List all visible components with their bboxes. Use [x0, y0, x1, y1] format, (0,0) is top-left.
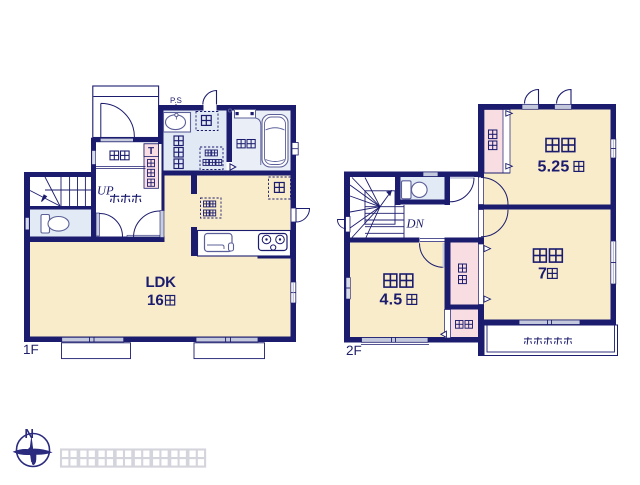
svg-text:4.5: 4.5 [380, 292, 403, 309]
svg-text:2F: 2F [346, 343, 362, 358]
svg-text:T: T [148, 146, 154, 157]
svg-text:UP: UP [97, 184, 114, 198]
svg-text:5.25: 5.25 [538, 159, 570, 176]
svg-text:P.S: P.S [170, 96, 182, 105]
svg-text:N: N [25, 426, 34, 441]
svg-text:16: 16 [147, 292, 164, 309]
svg-text:LDK: LDK [146, 274, 177, 291]
svg-text:1F: 1F [23, 342, 39, 357]
svg-text:7: 7 [538, 266, 547, 283]
svg-text:DN: DN [406, 217, 425, 231]
